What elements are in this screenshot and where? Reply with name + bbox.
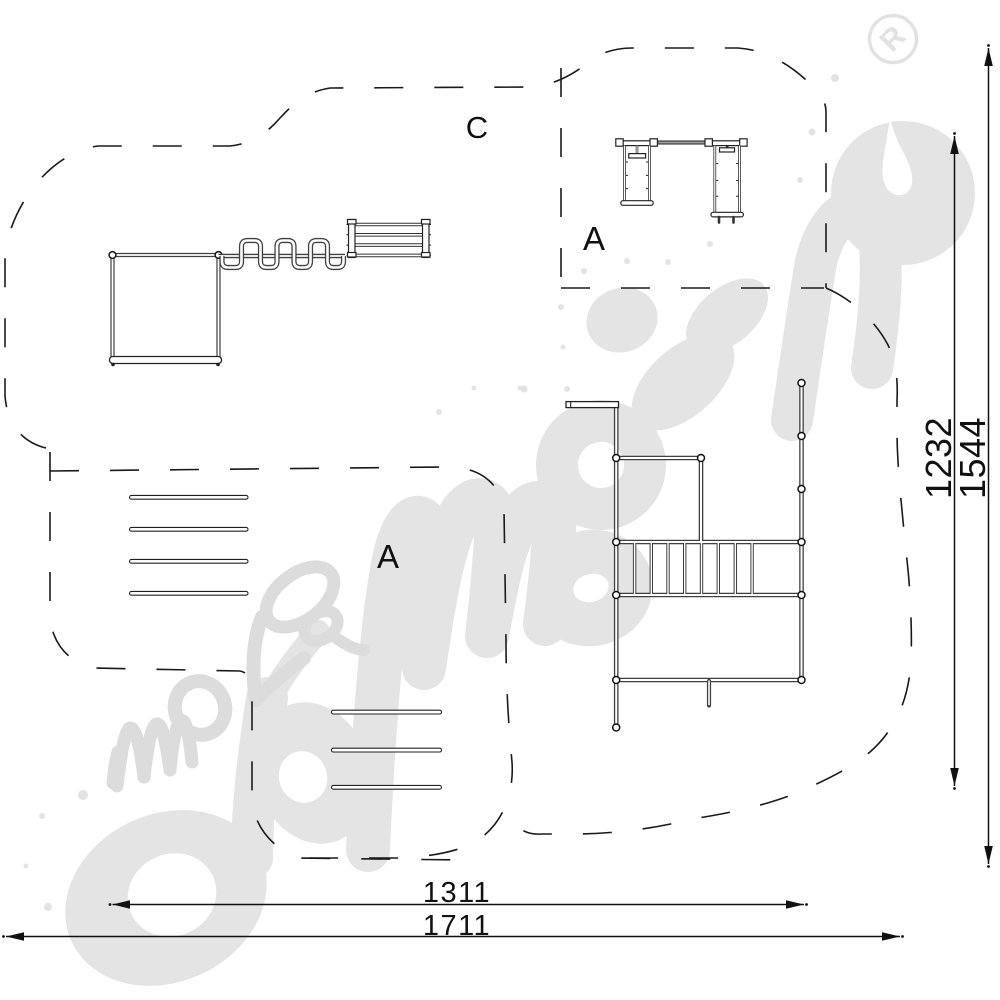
svg-text:1311: 1311 [423, 877, 491, 909]
svg-text:C: C [466, 110, 488, 145]
svg-text:A: A [583, 220, 605, 257]
svg-text:A: A [377, 538, 399, 575]
svg-text:1711: 1711 [423, 910, 491, 942]
svg-text:1544: 1544 [952, 417, 993, 499]
